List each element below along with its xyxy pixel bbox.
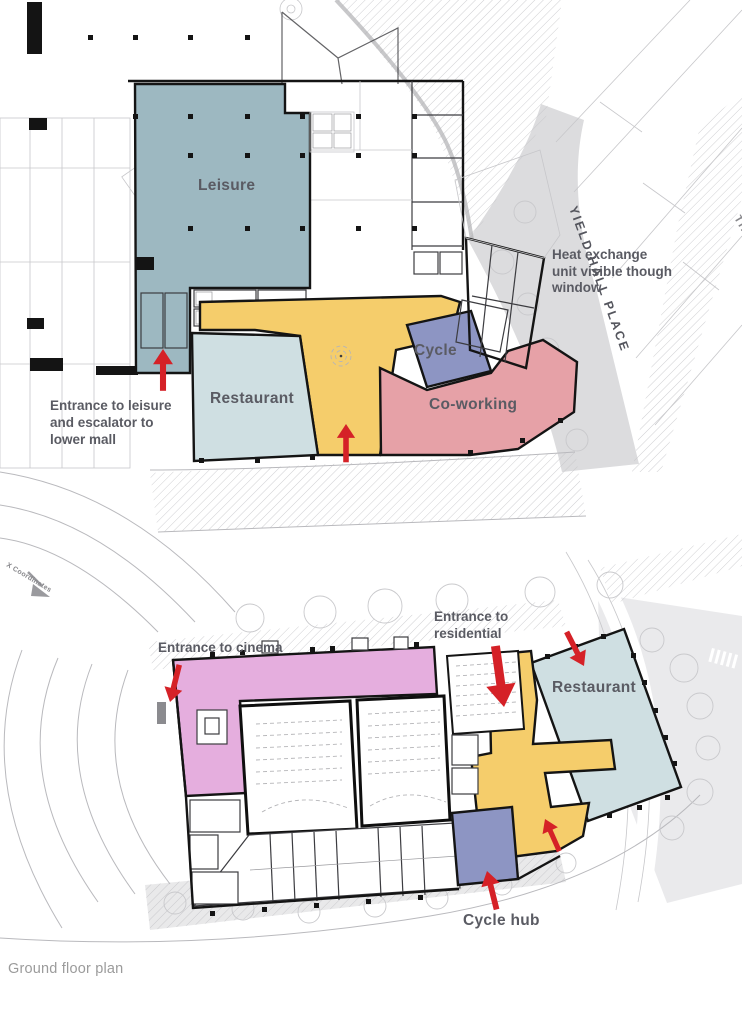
zone-cycle-hub xyxy=(452,807,518,885)
entrance-residential-note-line2: residential xyxy=(434,626,502,641)
floor-plan-page: YIELD HALL PLACE TH X Coordinates Leisur… xyxy=(0,0,742,1023)
entrance-cinema-note: Entrance to cinema xyxy=(158,640,283,655)
entrance-recess xyxy=(394,637,408,649)
cinema-auditorium-1 xyxy=(240,701,357,834)
entrance-recess xyxy=(352,638,368,650)
entrance-leisure-note-line2: and escalator to xyxy=(50,415,154,430)
floor-plan-canvas: YIELD HALL PLACE TH X Coordinates Leisur… xyxy=(0,0,742,1023)
cinema-entrance-door xyxy=(157,702,166,724)
entrance-leisure-note-line1: Entrance to leisure xyxy=(50,398,172,413)
zone-coworking-label: Co-working xyxy=(429,396,517,413)
entrance-leisure-note-line3: lower mall xyxy=(50,432,116,447)
escalator-wall xyxy=(136,257,154,270)
heat-exchange-note-line3: window xyxy=(551,280,602,295)
drawing-caption: Ground floor plan xyxy=(8,961,123,977)
zone-leisure-label: Leisure xyxy=(198,177,255,194)
entrance-residential-note-line1: Entrance to xyxy=(434,609,508,624)
lobby-stair-core xyxy=(197,710,227,744)
zone-cycle-hub-label: Cycle hub xyxy=(463,912,540,929)
heat-exchange-note-line2: unit visible though xyxy=(552,264,672,279)
zone-cycle-label: Cycle xyxy=(414,342,457,359)
cinema-auditorium-2 xyxy=(357,696,450,826)
heat-exchange-note-line1: Heat exchange xyxy=(552,247,648,262)
zone-restaurant-lower-label: Restaurant xyxy=(552,679,636,696)
zone-restaurant-upper-label: Restaurant xyxy=(210,390,294,407)
